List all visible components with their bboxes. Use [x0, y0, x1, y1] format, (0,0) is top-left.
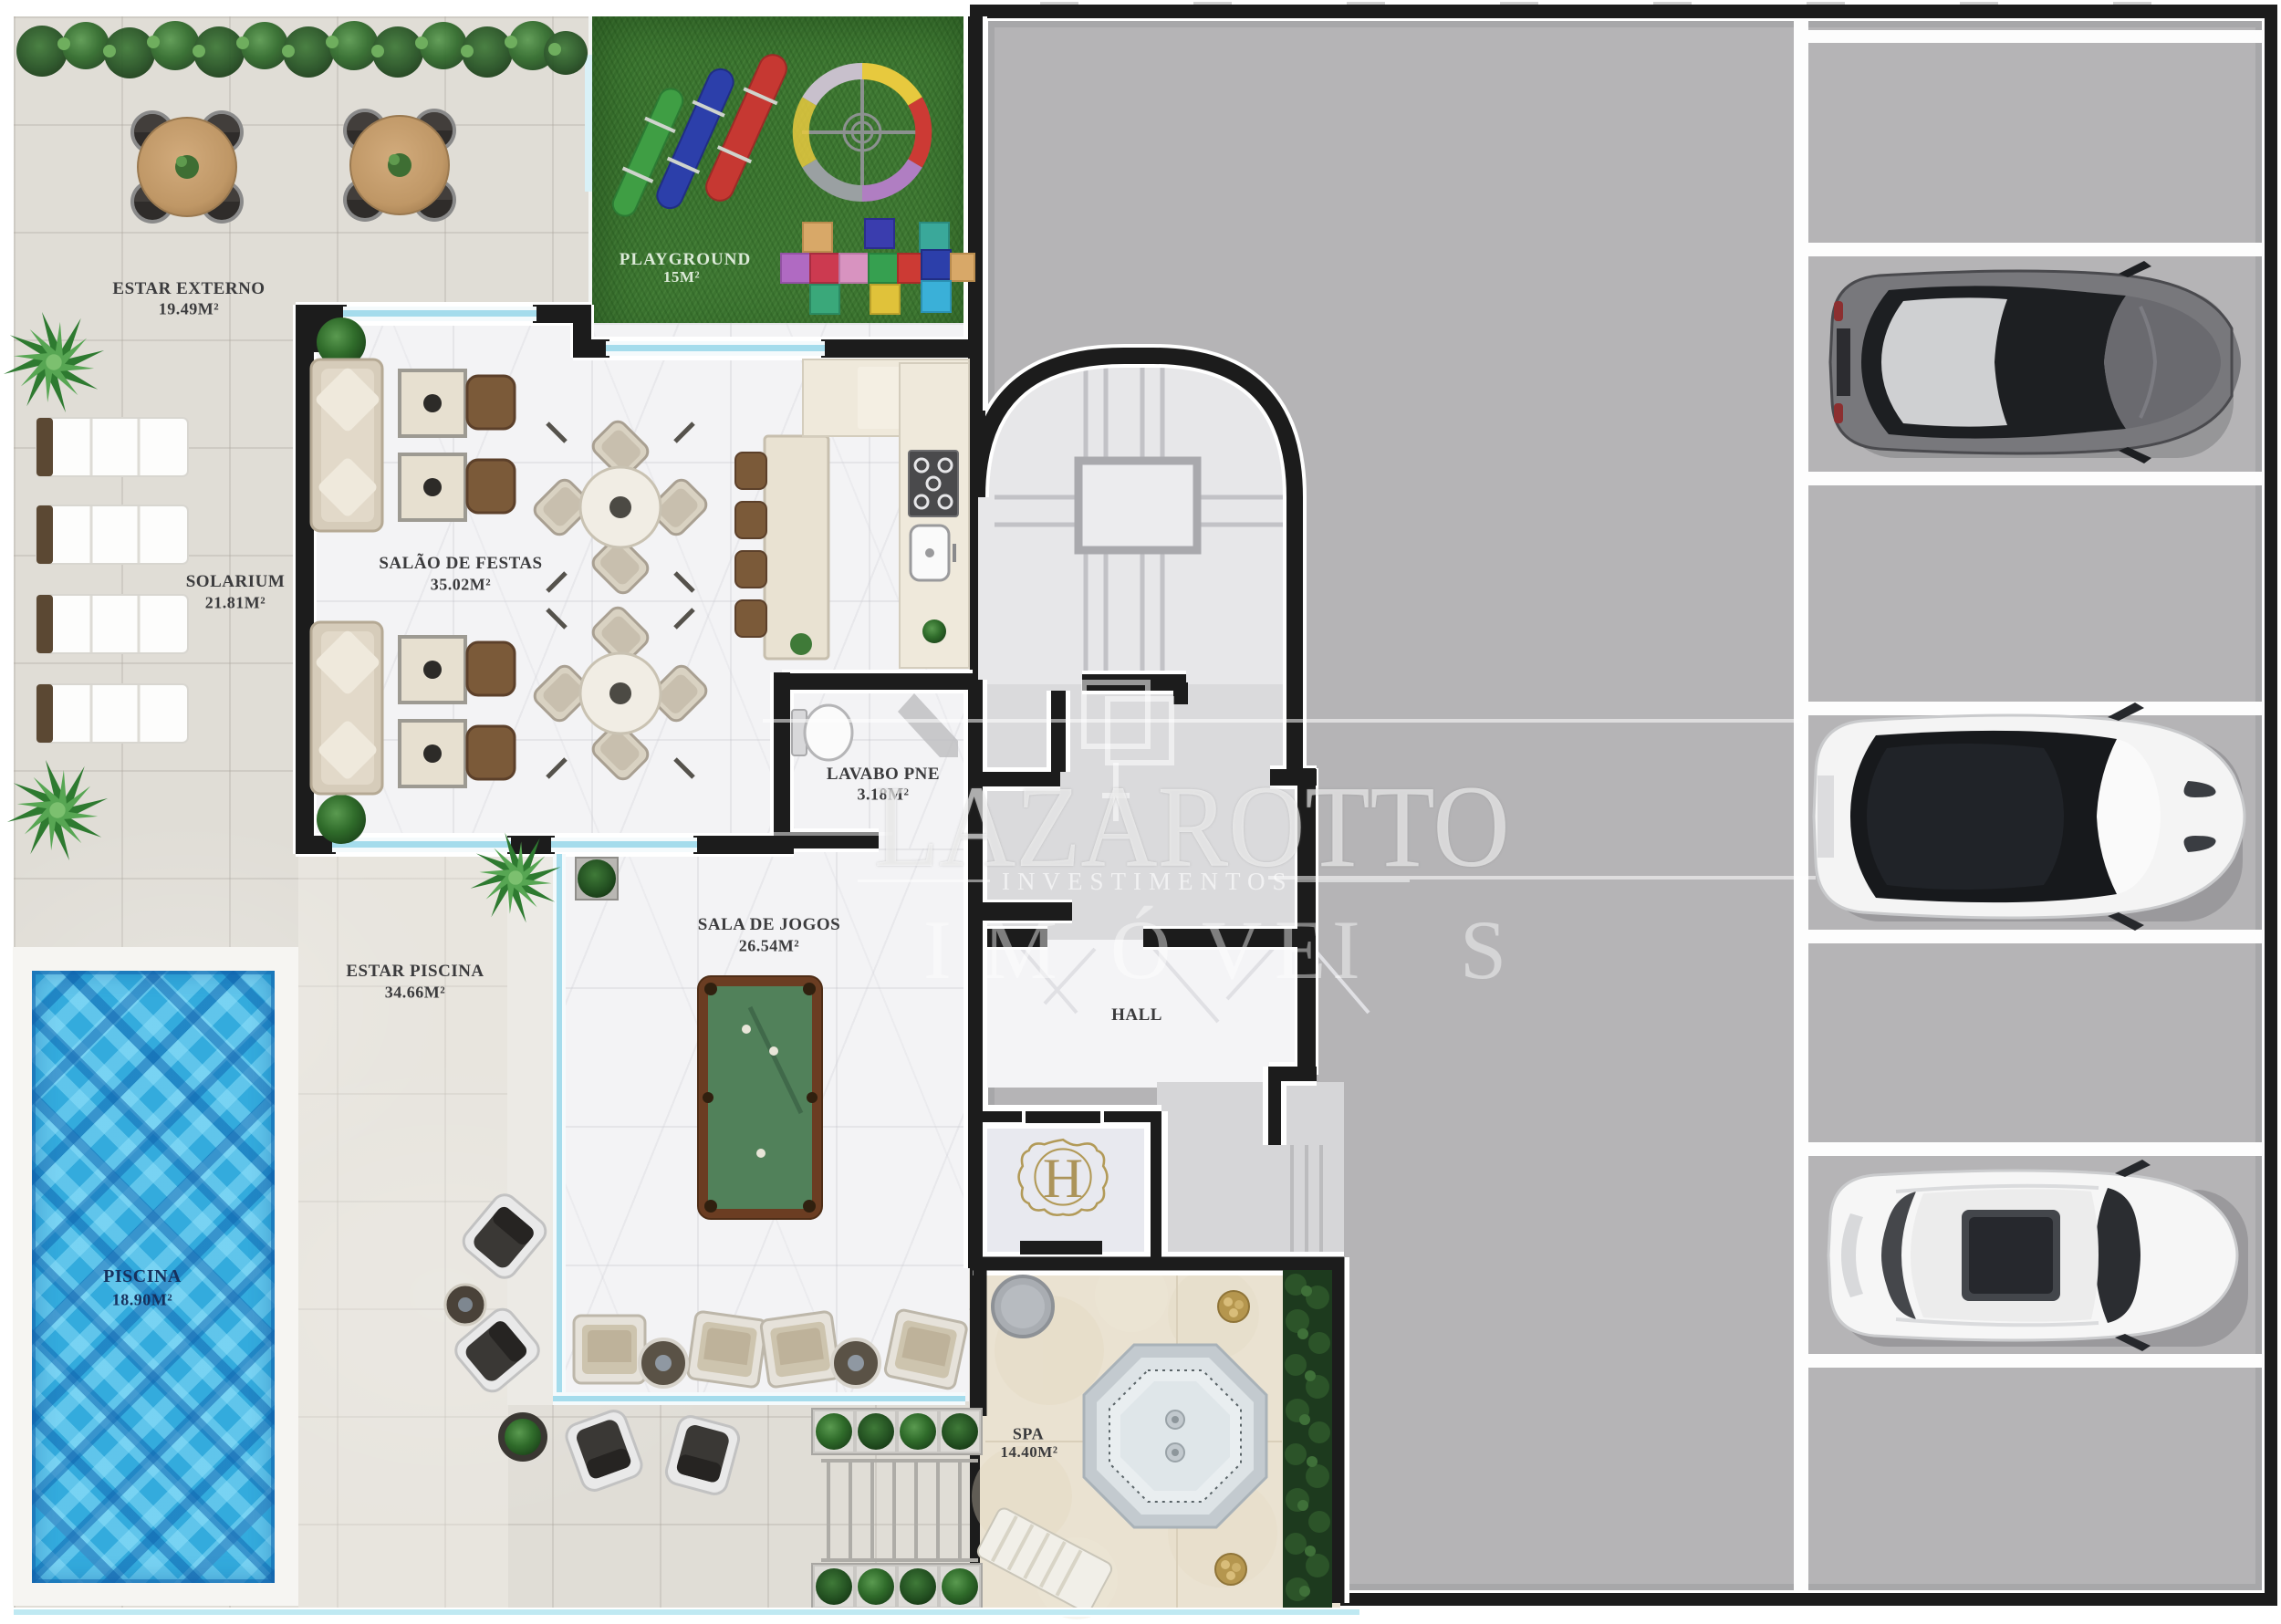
svg-text:H: H [1043, 1148, 1083, 1210]
